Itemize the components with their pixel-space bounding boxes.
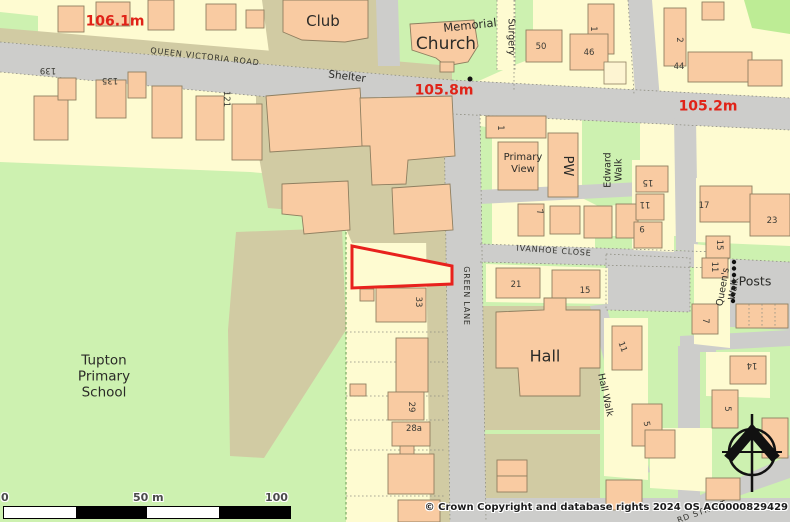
monument-dot bbox=[468, 77, 473, 82]
house-number: 46 bbox=[584, 48, 595, 58]
spot-height-105-8: 105.8m bbox=[415, 83, 474, 100]
road-label-green-lane: GREEN LANE bbox=[461, 266, 471, 326]
map-canvas bbox=[0, 0, 790, 522]
house-number: 21 bbox=[511, 280, 522, 290]
copyright-notice: © Crown Copyright and database rights 20… bbox=[425, 502, 788, 513]
church-label: Church bbox=[416, 34, 476, 54]
house-number: 9 bbox=[639, 223, 644, 233]
scale-bar: 0 50 m 100 m bbox=[3, 493, 291, 519]
house-number: 33 bbox=[413, 297, 423, 308]
spot-height-106-1: 106.1m bbox=[86, 14, 145, 31]
house-number: 2 bbox=[674, 37, 684, 42]
scale-segment bbox=[147, 507, 219, 518]
site-location-plan: 106.1m 105.8m 105.2m QUEEN VICTORIA ROAD… bbox=[0, 0, 790, 522]
house-number: 7 bbox=[700, 318, 710, 323]
pw-label: PW bbox=[559, 156, 575, 177]
house-number: 50 bbox=[536, 42, 547, 52]
club-label: Club bbox=[306, 12, 340, 30]
house-number: 15 bbox=[714, 240, 724, 251]
house-number: 135 bbox=[102, 75, 118, 85]
house-number: 139 bbox=[40, 65, 56, 75]
posts-label: Posts bbox=[739, 274, 772, 289]
scale-zero-label: 0 bbox=[1, 491, 9, 504]
house-number: 5 bbox=[722, 406, 732, 411]
house-number: 23 bbox=[767, 216, 778, 226]
house-number: 11 bbox=[709, 262, 719, 273]
house-number: 44 bbox=[674, 62, 685, 72]
house-number: 11 bbox=[640, 199, 651, 209]
house-number: 15 bbox=[580, 286, 591, 296]
scale-segment bbox=[219, 507, 291, 518]
scale-fifty-label: 50 m bbox=[133, 491, 164, 504]
house-number: 28a bbox=[406, 424, 422, 434]
house-number: 1 bbox=[495, 125, 505, 130]
primary-view-label: Primary View bbox=[504, 152, 543, 176]
road-label-surgery: Surgery bbox=[505, 18, 516, 55]
school-label: Tupton Primary School bbox=[78, 353, 130, 402]
hall-label: Hall bbox=[530, 346, 561, 365]
house-number: 14 bbox=[747, 360, 758, 370]
house-number: 29 bbox=[406, 402, 416, 413]
scale-segment bbox=[4, 507, 76, 518]
road-label-edward-walk: Edward Walk bbox=[603, 152, 626, 187]
spot-height-105-2: 105.2m bbox=[679, 99, 738, 116]
scale-bar-segments bbox=[3, 506, 291, 519]
house-number: 1 bbox=[588, 26, 598, 31]
house-number: 121 bbox=[221, 91, 231, 107]
house-number: 17 bbox=[699, 201, 710, 211]
house-number: 15 bbox=[643, 177, 654, 187]
scale-segment bbox=[76, 507, 148, 518]
